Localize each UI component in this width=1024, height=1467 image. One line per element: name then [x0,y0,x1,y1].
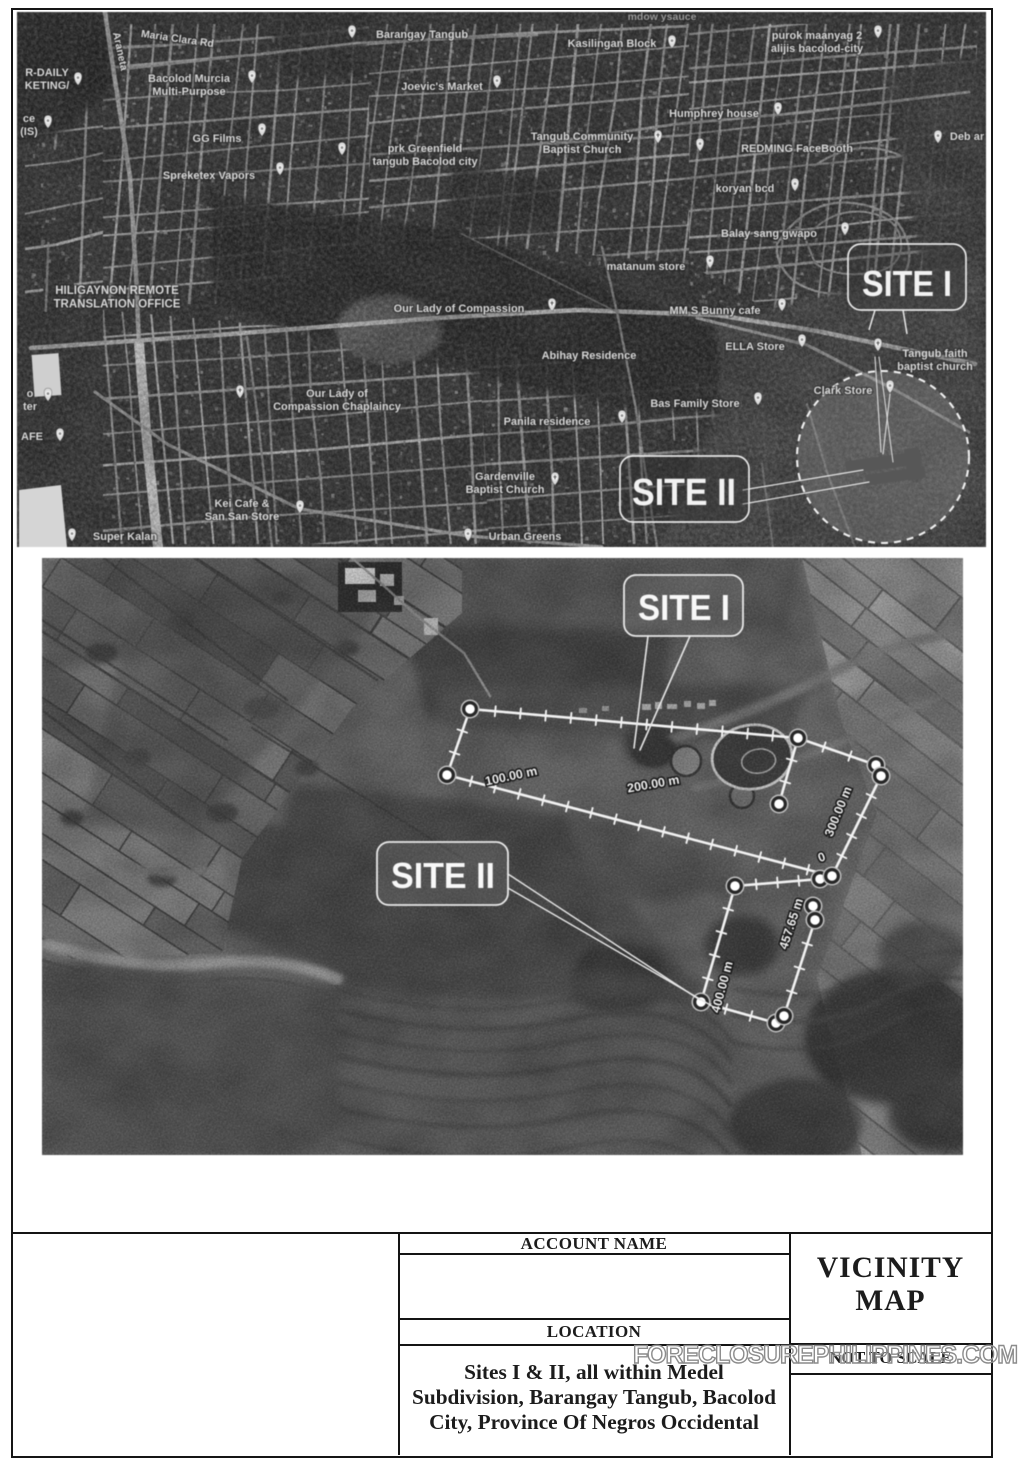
svg-text:Joevic's Market: Joevic's Market [401,81,483,93]
svg-text:Kasilingan Block: Kasilingan Block [568,38,658,50]
svg-text:Tangub faithbaptist church: Tangub faithbaptist church [897,348,973,373]
svg-text:GG Films: GG Films [193,133,242,145]
svg-text:SITE I: SITE I [862,263,952,304]
svg-text:REDMING FaceBooth: REDMING FaceBooth [741,143,853,155]
svg-text:matanum store: matanum store [607,261,686,273]
svg-text:Panila residence: Panila residence [504,416,591,428]
svg-text:purok maanyag 2alijis bacolod-: purok maanyag 2alijis bacolod-city [771,30,864,55]
svg-text:koryan bcd: koryan bcd [716,183,775,195]
svg-text:Balay sang gwapo: Balay sang gwapo [721,228,817,240]
svg-text:SITE II: SITE II [632,472,736,514]
svg-text:Spreketex Vapors: Spreketex Vapors [163,170,255,182]
svg-text:Bacolod MurciaMulti-Purpose: Bacolod MurciaMulti-Purpose [148,73,231,98]
svg-text:Clark Store: Clark Store [814,385,873,397]
svg-text:Kei Cafe &San San Store: Kei Cafe &San San Store [205,498,280,523]
svg-text:Super Kalan: Super Kalan [93,531,157,543]
svg-text:AFE: AFE [21,431,43,443]
svg-text:Bas Family Store: Bas Family Store [650,398,739,410]
svg-text:Our Lady of Compassion: Our Lady of Compassion [394,303,525,315]
svg-text:SITE I: SITE I [638,587,730,628]
svg-text:SITE II: SITE II [391,855,495,896]
svg-text:Tangub CommunityBaptist Church: Tangub CommunityBaptist Church [531,131,634,156]
svg-text:mdow ysauce: mdow ysauce [628,12,697,23]
svg-text:Urban Greens: Urban Greens [489,531,562,543]
svg-text:MM S Bunny cafe: MM S Bunny cafe [669,305,760,317]
svg-text:ELLA Store: ELLA Store [725,341,785,353]
svg-text:HILIGAYNON REMOTETRANSLATION O: HILIGAYNON REMOTETRANSLATION OFFICE [54,285,181,311]
svg-text:Humphrey house: Humphrey house [669,108,759,120]
svg-text:Deb ar: Deb ar [950,131,985,143]
svg-text:GardenvilleBaptist Church: GardenvilleBaptist Church [466,471,545,496]
svg-text:Barangay Tangub: Barangay Tangub [376,29,468,41]
svg-text:Abihay Residence: Abihay Residence [542,350,637,362]
svg-text:R-DAILYKETING/: R-DAILYKETING/ [25,67,70,92]
